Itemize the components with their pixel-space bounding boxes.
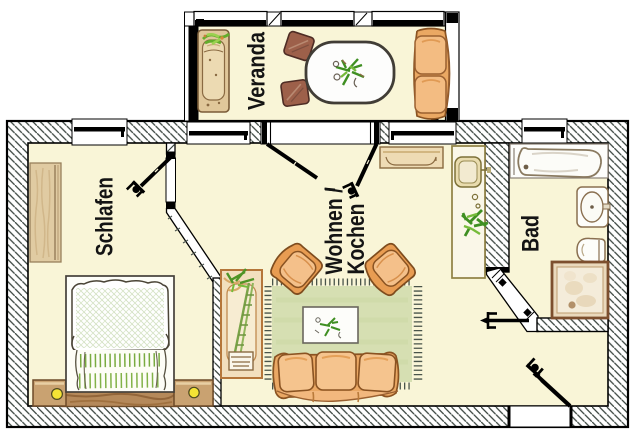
svg-text:Veranda: Veranda xyxy=(244,31,271,110)
svg-text:Bad: Bad xyxy=(518,215,545,252)
svg-text:Schlafen: Schlafen xyxy=(92,177,119,256)
